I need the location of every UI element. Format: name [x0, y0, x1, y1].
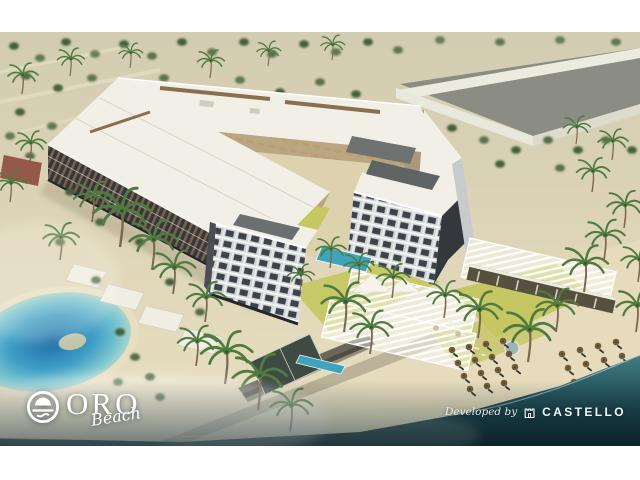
sun-over-waves-icon — [26, 390, 60, 424]
developer-name: CASTELLO — [542, 405, 626, 419]
logo-text: ORO Beach — [66, 388, 140, 429]
render-scene — [0, 32, 640, 446]
developed-by-label: Developed by — [445, 406, 517, 418]
aerial-render-photo: ORO Beach Developed by CASTELLO — [0, 32, 640, 446]
developer-credit: Developed by CASTELLO — [445, 405, 626, 419]
brand-tagline: Beach — [90, 405, 142, 429]
page: ORO Beach Developed by CASTELLO — [0, 0, 640, 480]
castle-icon — [523, 406, 536, 419]
oro-beach-logo: ORO Beach — [26, 388, 140, 429]
